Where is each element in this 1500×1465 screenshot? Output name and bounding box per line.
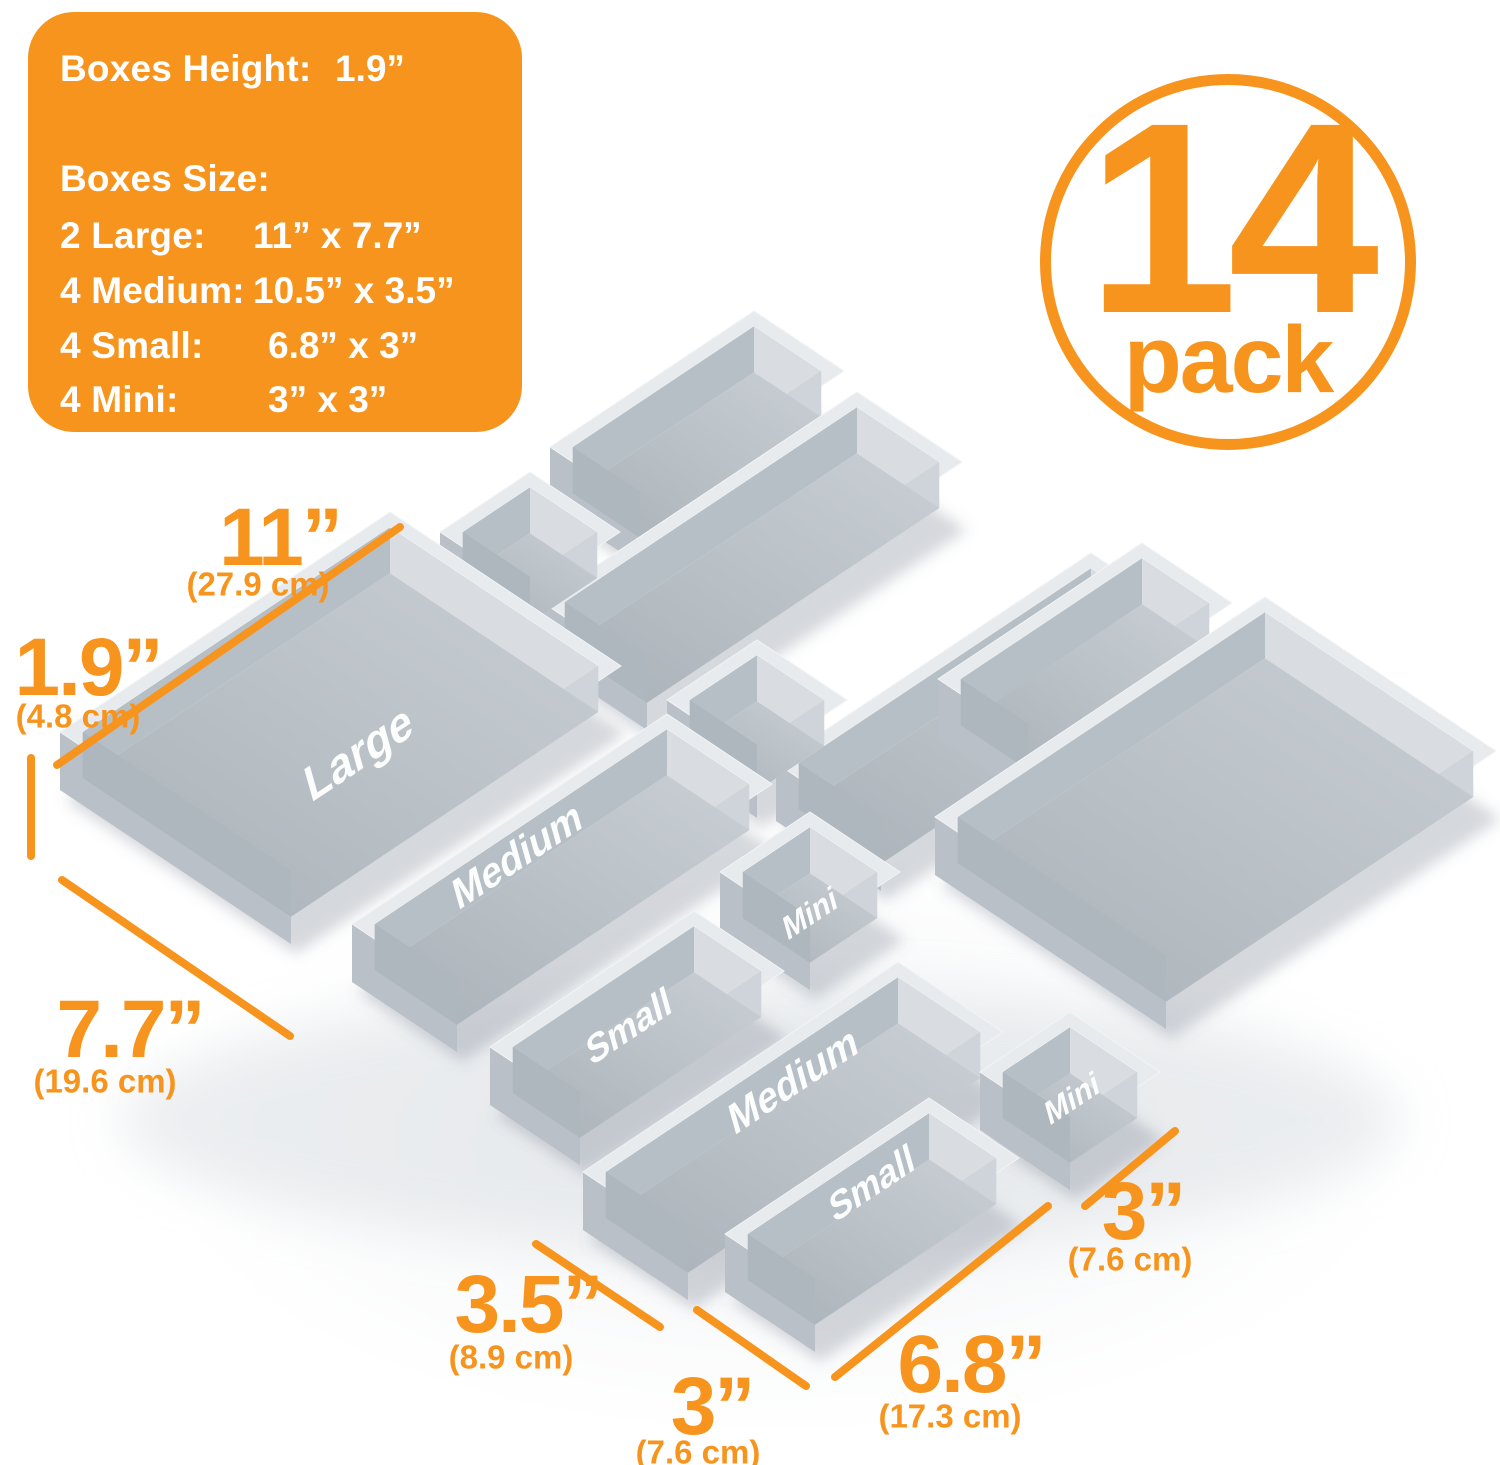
dimension-metric-w77: (19.6 cm)	[33, 1065, 176, 1098]
spec-medium-value: 10.5” x 3.5”	[253, 270, 455, 312]
spec-small-value: 6.8” x 3”	[268, 325, 418, 367]
spec-mini-value: 3” x 3”	[268, 379, 387, 421]
spec-height-label: Boxes Height:	[60, 48, 311, 90]
dimension-metric-h19: (4.8 cm)	[16, 700, 141, 733]
pack-count-badge: 14 pack	[1040, 74, 1416, 450]
pack-count-word: pack	[1124, 313, 1333, 408]
dimension-metric-w3b: (7.6 cm)	[636, 1436, 761, 1465]
dimension-metric-w35: (8.9 cm)	[449, 1341, 574, 1374]
spec-panel: Boxes Height: 1.9” Boxes Size: 2 Large: …	[28, 12, 522, 432]
dimension-value-w77: 7.7”	[57, 989, 204, 1071]
spec-size-label: Boxes Size:	[60, 158, 270, 200]
dimension-value-w35: 3.5”	[455, 1264, 602, 1346]
spec-large-label: 2 Large:	[60, 215, 206, 257]
spec-large-value: 11” x 7.7”	[253, 215, 422, 257]
spec-height-value: 1.9”	[335, 48, 405, 90]
dimension-metric-len11: (27.9 cm)	[186, 568, 329, 601]
spec-medium-label: 4 Medium:	[60, 270, 245, 312]
pack-count-number: 14	[1087, 110, 1370, 328]
dimension-metric-l68: (17.3 cm)	[878, 1400, 1021, 1433]
spec-mini-label: 4 Mini:	[60, 379, 179, 421]
dimension-value-l68: 6.8”	[898, 1324, 1045, 1406]
product-image: LargeMediumMiniSmallMediumMiniSmall Boxe…	[0, 0, 1500, 1465]
dimension-metric-w3r: (7.6 cm)	[1068, 1243, 1193, 1276]
spec-small-label: 4 Small:	[60, 325, 204, 367]
